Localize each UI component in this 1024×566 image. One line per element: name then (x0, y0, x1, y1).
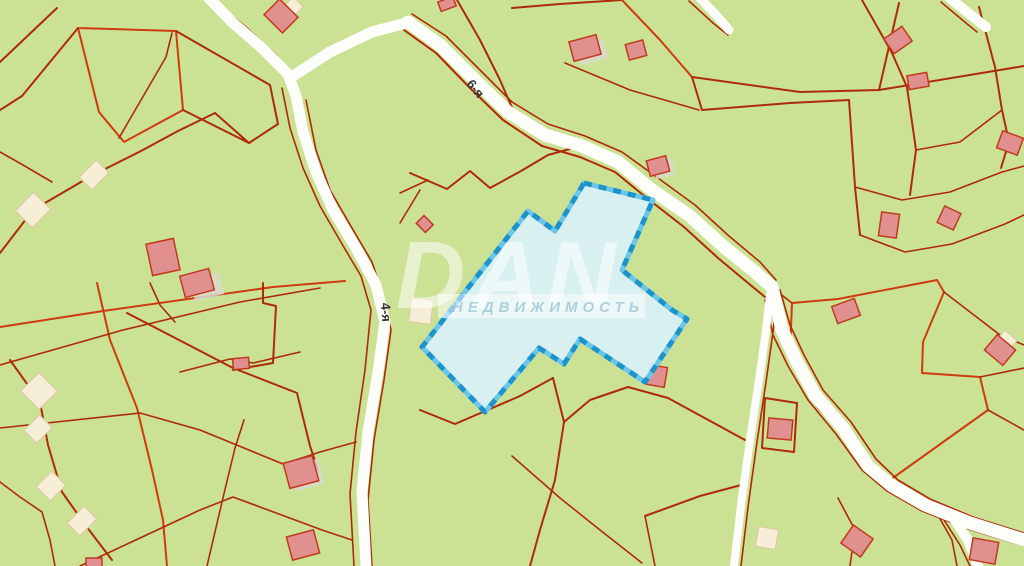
watermark-tagline: НЕДВИЖИМОСТЬ (452, 299, 644, 316)
map-viewport[interactable]: DAN НЕДВИЖИМОСТЬ 6-я 4-я (0, 0, 1024, 566)
road-label-4: 4-я (378, 302, 394, 322)
map-canvas[interactable]: DAN НЕДВИЖИМОСТЬ 6-я 4-я (0, 0, 1024, 566)
watermark: DAN НЕДВИЖИМОСТЬ (396, 222, 645, 329)
